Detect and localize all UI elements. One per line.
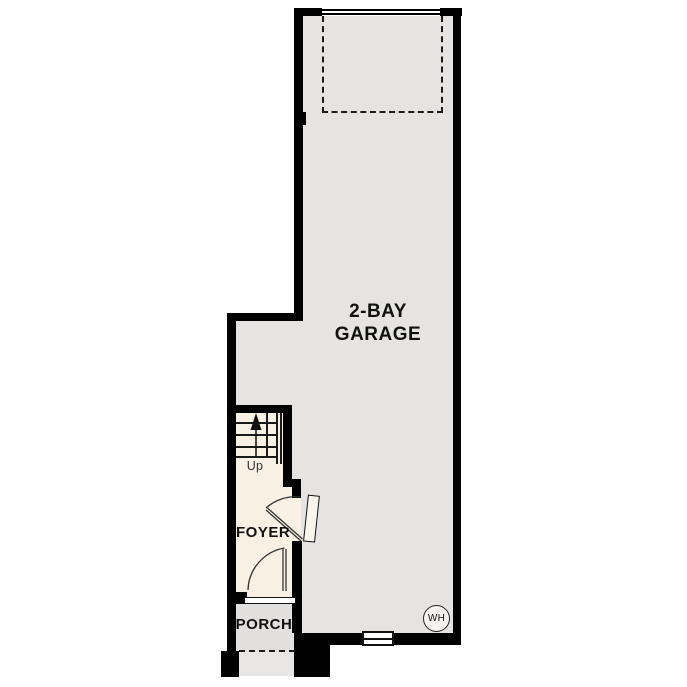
window-icon <box>362 631 394 646</box>
stair-bottom-line <box>236 456 277 458</box>
garage-right-wall <box>453 8 461 645</box>
water-heater-label: WH <box>428 613 445 624</box>
garage-label-line1: 2-BAY <box>303 300 453 323</box>
porch-room-label: PORCH <box>235 616 293 633</box>
entry-threshold <box>244 597 296 604</box>
garage-door-line-inner <box>322 13 440 15</box>
overhead-garage-door-outline <box>322 16 443 113</box>
stair-railing-line <box>280 413 282 464</box>
stair-tread-line <box>236 422 277 424</box>
stairs-up-label: Up <box>240 459 270 473</box>
stairs-garage-wall <box>283 405 292 479</box>
garage-jog-wall <box>227 313 303 321</box>
stair-tread-line <box>236 446 277 448</box>
porch-step <box>238 651 296 676</box>
garage-left-wall <box>294 8 303 321</box>
stairs-top-wall <box>227 405 288 413</box>
porch-left-block <box>221 651 239 677</box>
water-heater-symbol: WH <box>423 605 450 632</box>
wall-below-garage-door <box>292 541 302 633</box>
window-mullion <box>364 638 392 640</box>
porch-step-dashed-line <box>239 650 295 652</box>
wall-above-garage-door <box>292 487 301 498</box>
garage-door-line-outer <box>322 9 440 11</box>
left-wall-pilaster <box>294 112 306 125</box>
floor-plan: WH 2-BAY GARAGE FOYER PORCH Up <box>0 0 687 687</box>
foyer-room-label: FOYER <box>236 524 290 541</box>
garage-label-line2: GARAGE <box>303 323 453 346</box>
stair-railing-line <box>276 413 278 464</box>
garage-room-label: 2-BAY GARAGE <box>303 300 453 346</box>
stair-center-line <box>266 413 268 458</box>
foyer-jog-wall <box>283 479 301 487</box>
garage-door-jamb-left <box>294 8 322 16</box>
stair-tread-line <box>236 434 277 436</box>
